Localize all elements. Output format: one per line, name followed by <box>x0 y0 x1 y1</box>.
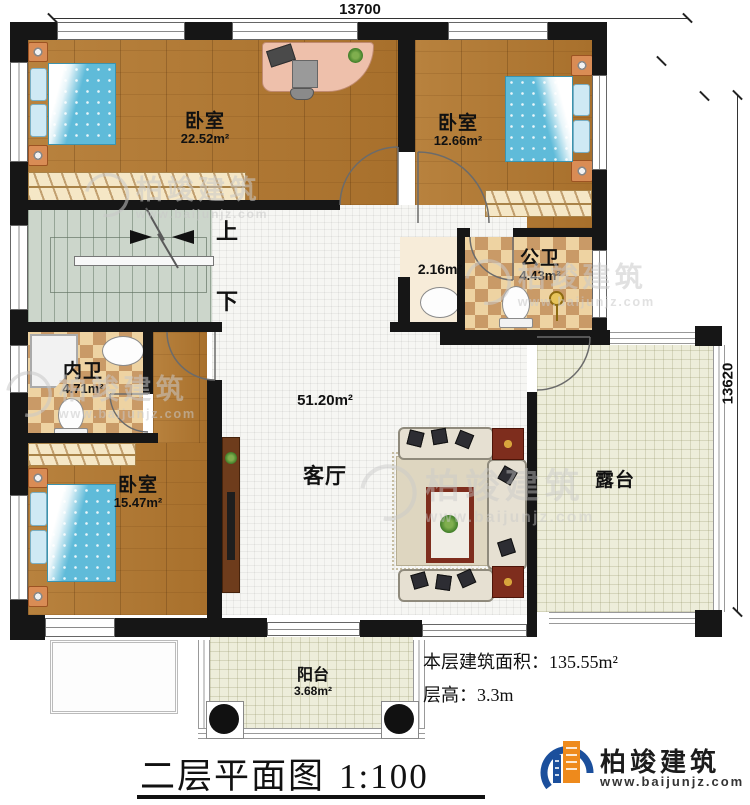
room-name: 公卫 <box>485 249 595 269</box>
plan-scale: 1:100 <box>339 757 429 796</box>
door-hallway <box>167 332 215 380</box>
bedroom1-label: 卧室 22.52m² <box>150 112 260 146</box>
room-name: 阳台 <box>258 668 368 685</box>
floor-area-summary: 本层建筑面积：135.55m² <box>423 648 618 674</box>
dimension-top: 13700 <box>300 1 420 18</box>
stairs-up-label: 上 <box>212 220 242 243</box>
floor-area-value: 135.55m² <box>549 652 618 672</box>
living-room-label: 51.20m² <box>270 393 380 409</box>
room-name: 卧室 <box>83 476 193 496</box>
room-area: 12.66m² <box>403 134 513 148</box>
bedroom3-label: 卧室 15.47m² <box>83 476 193 510</box>
room-area: 22.52m² <box>150 132 260 146</box>
door-bedroom2 <box>418 152 489 223</box>
door-bedroom1 <box>340 147 398 205</box>
bedroom2-label: 卧室 12.66m² <box>403 114 513 148</box>
floor-area-label: 本层建筑面积： <box>423 652 549 672</box>
plan-title-text: 二层平面图 <box>140 757 325 796</box>
room-name: 内卫 <box>28 362 138 382</box>
stairs-down-label: 下 <box>212 290 242 313</box>
room-area: 4.71m² <box>28 382 138 396</box>
floor-plan-canvas: 卧室 22.52m² 卧室 12.66m² 卧室 15.47m² 公卫 4.43… <box>0 0 750 805</box>
inner-bath-label: 内卫 4.71m² <box>28 362 138 396</box>
door-terrace <box>537 337 590 390</box>
room-name: 卧室 <box>403 114 513 134</box>
brand-logo-icon <box>540 731 594 799</box>
floor-height-label: 层高： <box>423 685 477 705</box>
room-area: 3.68m² <box>258 685 368 698</box>
terrace-label: 露台 <box>570 471 660 491</box>
public-bath-label: 公卫 4.43m² <box>485 249 595 283</box>
room-area: 51.20m² <box>270 393 380 409</box>
balcony-label: 阳台 3.68m² <box>258 668 368 697</box>
title-underline <box>137 795 485 799</box>
dimension-top-line <box>52 18 688 19</box>
stair-break-mark <box>130 208 194 268</box>
dimension-right-line <box>737 95 738 612</box>
floor-height-value: 3.3m <box>477 685 514 705</box>
brand-url: www.baijunjz.com <box>600 774 744 789</box>
door-inner-bath <box>110 394 148 432</box>
living-room-name: 客厅 <box>270 466 380 488</box>
dimension-right: 13620 <box>720 344 737 424</box>
door-arcs <box>110 147 590 432</box>
wash-niche-label: 2.16m² <box>395 262 485 277</box>
floor-height-summary: 层高：3.3m <box>423 681 514 707</box>
plan-title: 二层平面图1:100 <box>140 748 429 799</box>
room-area: 4.43m² <box>485 269 595 283</box>
room-name: 卧室 <box>150 112 260 132</box>
room-area: 15.47m² <box>83 496 193 510</box>
